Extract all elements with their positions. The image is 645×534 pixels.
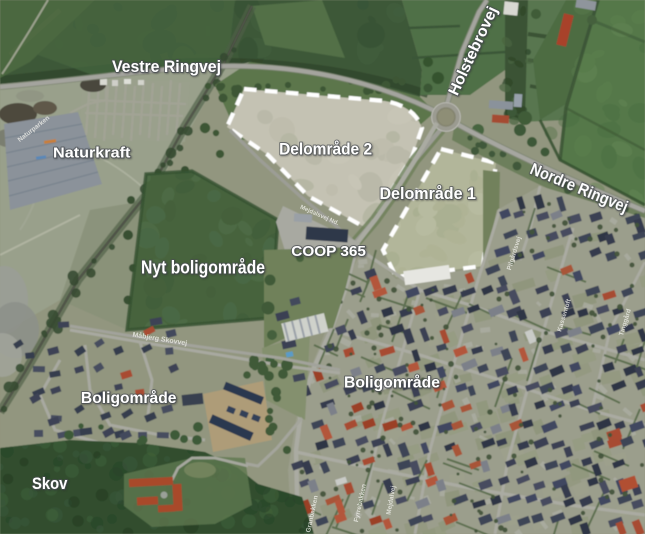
svg-text:Skov: Skov	[32, 474, 68, 493]
svg-text:Naturkraft: Naturkraft	[53, 145, 130, 162]
svg-text:Boligområde: Boligområde	[344, 373, 440, 391]
svg-text:COOP 365: COOP 365	[291, 244, 366, 260]
svg-text:Nyt boligområde: Nyt boligområde	[141, 257, 265, 277]
svg-text:Vestre Ringvej: Vestre Ringvej	[112, 57, 221, 76]
svg-text:Delområde 2: Delområde 2	[279, 140, 372, 159]
svg-text:Delområde 1: Delområde 1	[379, 184, 476, 203]
svg-text:Boligområde: Boligområde	[81, 390, 177, 407]
